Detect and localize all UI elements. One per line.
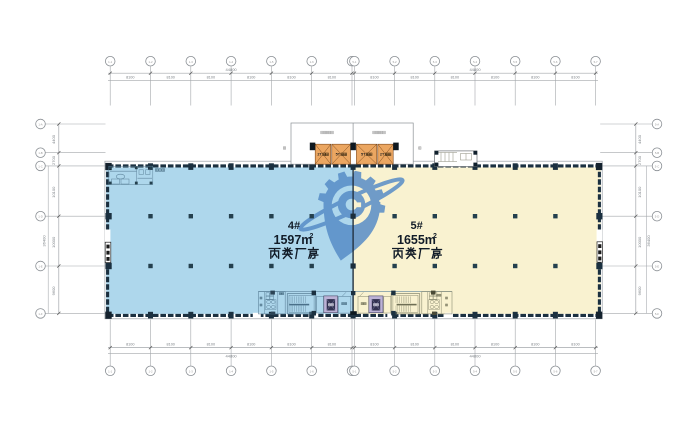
- svg-text:10000: 10000: [51, 236, 56, 248]
- svg-text:2T: 2T: [380, 153, 385, 157]
- svg-text:8100: 8100: [287, 343, 295, 347]
- svg-text:8100: 8100: [166, 76, 174, 80]
- svg-text:5-1: 5-1: [352, 60, 356, 64]
- svg-text:2T: 2T: [317, 153, 322, 157]
- svg-text:36400: 36400: [42, 235, 47, 247]
- svg-text:5-6: 5-6: [553, 60, 557, 64]
- svg-text:8100: 8100: [126, 76, 134, 80]
- svg-text:1-B: 1-B: [38, 151, 42, 155]
- svg-text:8100: 8100: [410, 343, 418, 347]
- svg-text:5-2: 5-2: [393, 369, 397, 373]
- svg-text:8100: 8100: [491, 343, 499, 347]
- svg-text:1-F: 1-F: [38, 312, 42, 316]
- svg-text:8100: 8100: [247, 76, 255, 80]
- svg-text:5-3: 5-3: [433, 369, 437, 373]
- svg-text:1-D: 1-D: [38, 215, 43, 219]
- svg-text:5-B: 5-B: [655, 151, 659, 155]
- svg-text:10100: 10100: [51, 186, 56, 198]
- svg-text:8100: 8100: [247, 343, 255, 347]
- svg-text:5-1: 5-1: [352, 369, 356, 373]
- svg-text:5-4: 5-4: [473, 60, 477, 64]
- svg-text:5-5: 5-5: [513, 369, 517, 373]
- svg-text:5-D: 5-D: [655, 215, 660, 219]
- svg-text:44800: 44800: [226, 354, 238, 359]
- svg-text:9600: 9600: [637, 286, 642, 296]
- svg-text:8100: 8100: [207, 343, 215, 347]
- svg-text:8100: 8100: [166, 343, 174, 347]
- svg-text:5-F: 5-F: [655, 312, 659, 316]
- svg-text:8100: 8100: [328, 343, 336, 347]
- svg-text:36400: 36400: [646, 235, 651, 247]
- svg-text:1-1: 1-1: [108, 60, 112, 64]
- svg-text:1-6: 1-6: [310, 369, 314, 373]
- svg-text:5-E: 5-E: [655, 265, 659, 269]
- svg-text:5-A: 5-A: [655, 123, 659, 127]
- svg-text:1-5: 1-5: [269, 60, 273, 64]
- svg-text:8100: 8100: [207, 76, 215, 80]
- svg-text:5T: 5T: [336, 153, 341, 157]
- svg-text:1-1: 1-1: [108, 369, 112, 373]
- svg-text:5-2: 5-2: [393, 60, 397, 64]
- svg-text:5-4: 5-4: [473, 369, 477, 373]
- svg-text:8100: 8100: [531, 343, 539, 347]
- svg-text:5T: 5T: [361, 153, 366, 157]
- svg-text:1-C: 1-C: [38, 164, 43, 168]
- svg-text:1-3: 1-3: [189, 369, 193, 373]
- svg-text:2: 2: [310, 233, 314, 240]
- svg-text:8100: 8100: [571, 76, 579, 80]
- svg-text:8100: 8100: [531, 76, 539, 80]
- svg-text:1-4: 1-4: [229, 369, 233, 373]
- svg-text:1-A: 1-A: [38, 123, 42, 127]
- svg-text:5-5: 5-5: [513, 60, 517, 64]
- svg-text:5-3: 5-3: [433, 60, 437, 64]
- svg-text:5-6: 5-6: [553, 369, 557, 373]
- svg-text:1-4: 1-4: [229, 60, 233, 64]
- svg-text:5#: 5#: [410, 220, 422, 232]
- svg-text:1655m: 1655m: [397, 233, 436, 247]
- svg-text:10000: 10000: [637, 236, 642, 248]
- svg-text:8100: 8100: [410, 76, 418, 80]
- svg-text:8100: 8100: [451, 343, 459, 347]
- svg-text:1-5: 1-5: [269, 369, 273, 373]
- svg-text:10100: 10100: [637, 186, 642, 198]
- svg-text:5-C: 5-C: [655, 164, 660, 168]
- svg-text:2700: 2700: [637, 155, 642, 165]
- svg-text:9600: 9600: [51, 286, 56, 296]
- svg-text:1-3: 1-3: [189, 60, 193, 64]
- svg-text:2700: 2700: [51, 155, 56, 165]
- svg-text:4400: 4400: [51, 134, 56, 144]
- svg-text:1597m: 1597m: [274, 233, 313, 247]
- svg-text:1-E: 1-E: [38, 265, 42, 269]
- svg-text:8100: 8100: [328, 76, 336, 80]
- svg-text:44800: 44800: [469, 354, 481, 359]
- svg-text:44800: 44800: [226, 67, 238, 72]
- svg-text:1-2: 1-2: [148, 60, 152, 64]
- svg-text:4400: 4400: [637, 134, 642, 144]
- svg-text:1-2: 1-2: [148, 369, 152, 373]
- svg-text:5-7: 5-7: [594, 369, 598, 373]
- svg-text:5-7: 5-7: [594, 60, 598, 64]
- svg-text:4#: 4#: [288, 220, 300, 232]
- svg-text:44800: 44800: [469, 67, 481, 72]
- svg-text:8100: 8100: [370, 76, 378, 80]
- svg-text:2: 2: [433, 233, 437, 240]
- svg-text:8100: 8100: [491, 76, 499, 80]
- svg-text:8100: 8100: [571, 343, 579, 347]
- svg-text:8100: 8100: [370, 343, 378, 347]
- svg-text:8100: 8100: [451, 76, 459, 80]
- svg-text:8100: 8100: [126, 343, 134, 347]
- svg-text:8100: 8100: [287, 76, 295, 80]
- svg-text:1-6: 1-6: [310, 60, 314, 64]
